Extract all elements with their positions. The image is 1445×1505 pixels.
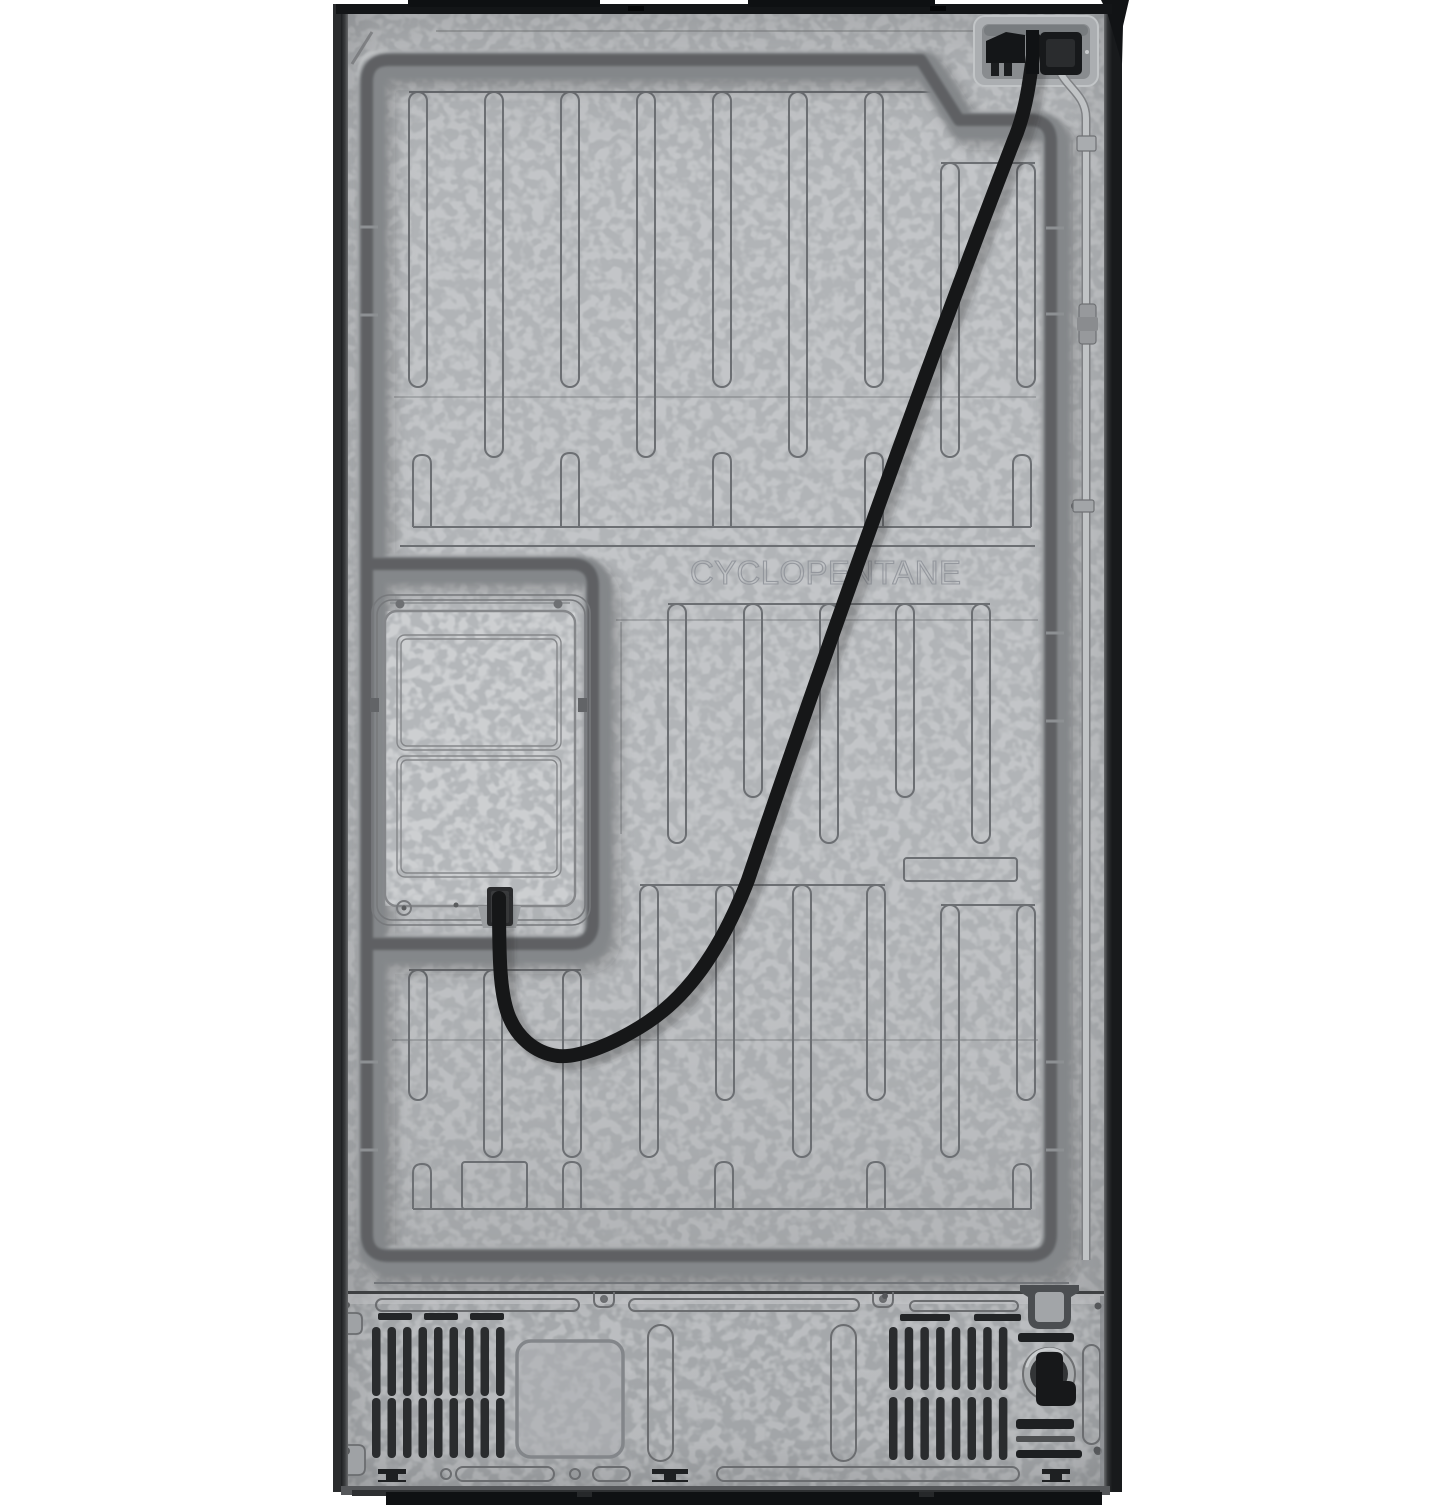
svg-text:CYCLOPENTANE: CYCLOPENTANE [690,554,963,591]
